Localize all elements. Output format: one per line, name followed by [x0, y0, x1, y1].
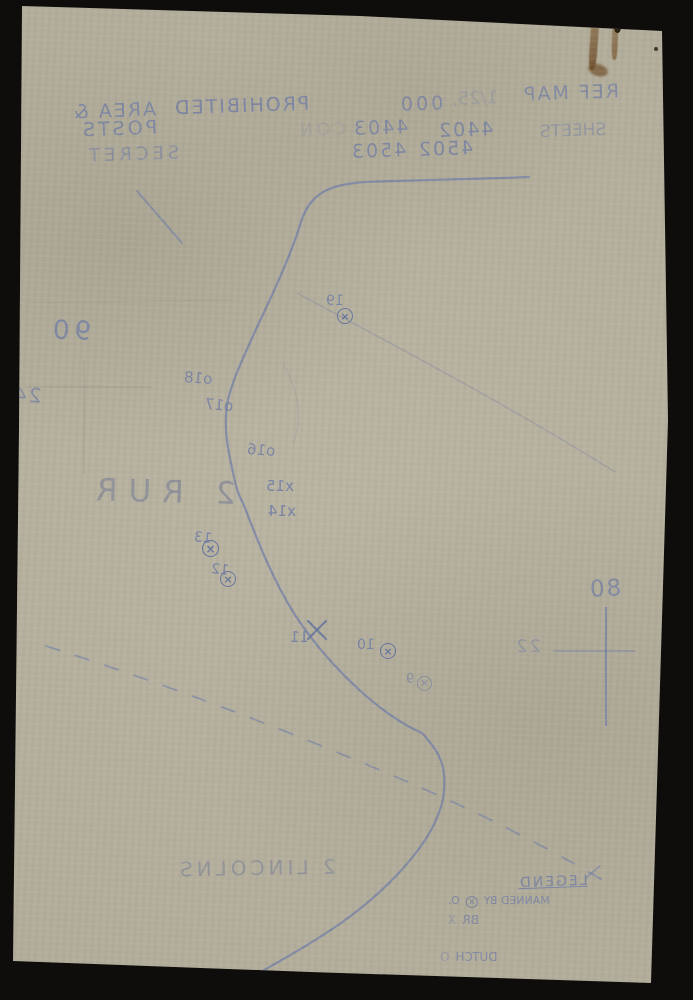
legend-x-icon: X [448, 913, 456, 927]
post-label-o16: o16 [246, 440, 275, 460]
post-label-o18: o18 [183, 368, 212, 388]
post-label-9: 9 [406, 672, 414, 687]
grid-label-22: 22 [514, 636, 541, 657]
header-posts: POSTS [80, 117, 158, 142]
header-sheet-4503: 4503 [350, 139, 407, 163]
short-blue-segment [137, 191, 182, 243]
post-label-19: 19 [326, 293, 344, 309]
small-speck [654, 47, 658, 51]
legend-title: LEGEND [518, 873, 588, 891]
legend-manned-by-abbrev: O. [448, 894, 460, 907]
legend-manned-by-label: MANNED BY [484, 894, 550, 907]
legend-o-icon: O [440, 950, 449, 964]
post-label-x15: x15 [266, 477, 294, 495]
rust-stain [584, 8, 640, 84]
legend-dutch-label: DUTCH [455, 950, 497, 964]
grid-cross-right [553, 607, 635, 726]
header-sheets: SHEETS [540, 120, 607, 142]
faint-pencil-arc [283, 363, 298, 444]
legend-circle-x-icon: × [466, 896, 478, 908]
legend-row-br: BR X [448, 913, 479, 927]
post-label-x14: x14 [268, 502, 296, 520]
header-scale-zeros: 000 [398, 92, 444, 116]
stain-hook [587, 61, 610, 79]
grid-label-90: 90 [47, 315, 91, 346]
unit-label-2rur: 2 RUR [85, 472, 236, 512]
header-sheet-4403: 4403 [352, 116, 409, 140]
unit-label-2lincolns: 2 LINCOLNS [176, 855, 336, 882]
post-13-circle-x-icon: × [202, 540, 219, 557]
stain-hole [614, 22, 621, 33]
header-secret: SECRET [85, 142, 180, 166]
legend-br-label: BR [462, 913, 479, 927]
dashed-boundary-line [46, 646, 606, 882]
post-label-o17: o17 [204, 395, 233, 415]
legend-row-dutch: DUTCH O [440, 950, 498, 964]
post-label-10: 10 [357, 637, 375, 653]
post-9-circle-x-icon: × [417, 676, 432, 691]
post-19-circle-x-icon: × [337, 308, 353, 324]
scan-stage: REF MAP 1/25, 000 PROHIBITED AREA & SHEE… [0, 0, 693, 1000]
grid-label-80: 80 [587, 575, 622, 603]
header-ref-map: REF MAP [522, 80, 620, 105]
post-label-11: 11 [290, 628, 309, 646]
post-12-circle-x-icon: × [220, 571, 236, 587]
post-10-circle-x-icon: × [380, 643, 396, 659]
stain-streak-left [588, 12, 600, 70]
post-11-x-mark [308, 621, 326, 639]
header-scale-prefix: 1/25, [452, 87, 499, 110]
legend-row-manned-by: MANNED BY × O. [448, 894, 550, 908]
header-sheet-4502: 4502 [417, 137, 474, 161]
header-ghost-text: CON [296, 119, 347, 141]
stain-streak-right [611, 14, 619, 60]
grid-label-24: 24 [11, 382, 42, 408]
map-paper-sheet: REF MAP 1/25, 000 PROHIBITED AREA & SHEE… [0, 0, 693, 1000]
